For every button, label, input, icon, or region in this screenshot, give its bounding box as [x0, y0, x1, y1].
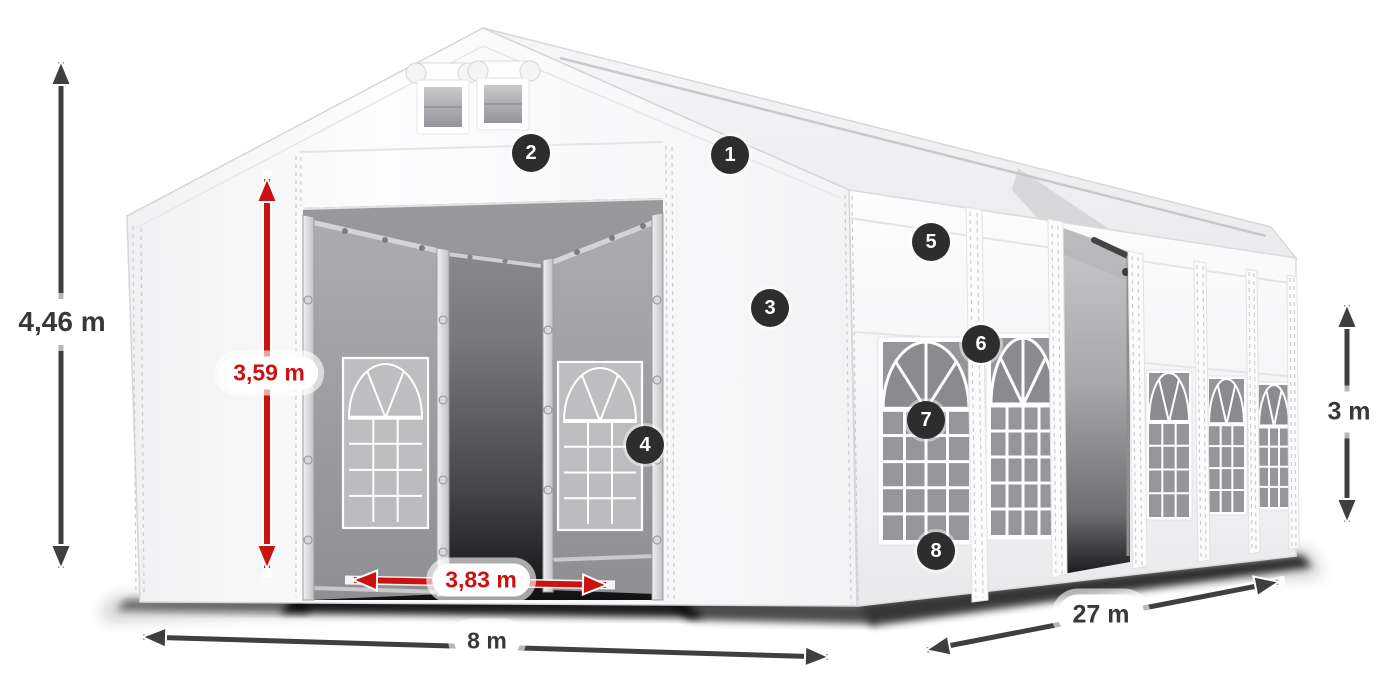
callout-badge-8: 8 [917, 532, 955, 570]
callout-badge-5: 5 [912, 223, 950, 261]
label-entrance-height: 3,59 m [220, 357, 318, 390]
tent-illustration [0, 0, 1400, 700]
callout-badge-2: 2 [512, 134, 550, 172]
callout-badge-1: 1 [711, 136, 749, 174]
entrance [303, 198, 663, 600]
label-side-height: 3 m [1312, 392, 1385, 433]
label-length: 27 m [1058, 595, 1145, 636]
label-width: 8 m [454, 625, 520, 658]
callout-badge-7: 7 [907, 401, 945, 439]
label-entrance-width: 3,83 m [432, 564, 530, 597]
tent-diagram: 4,46 m 3,59 m 3,83 m 8 m 27 m 3 m 1 2 3 … [0, 0, 1400, 700]
callout-badge-3: 3 [751, 289, 789, 327]
label-total-height: 4,46 m [1, 299, 122, 345]
callout-badge-6: 6 [962, 325, 1000, 363]
callout-badge-4: 4 [626, 426, 664, 464]
side-doorway-gap [1063, 228, 1130, 574]
